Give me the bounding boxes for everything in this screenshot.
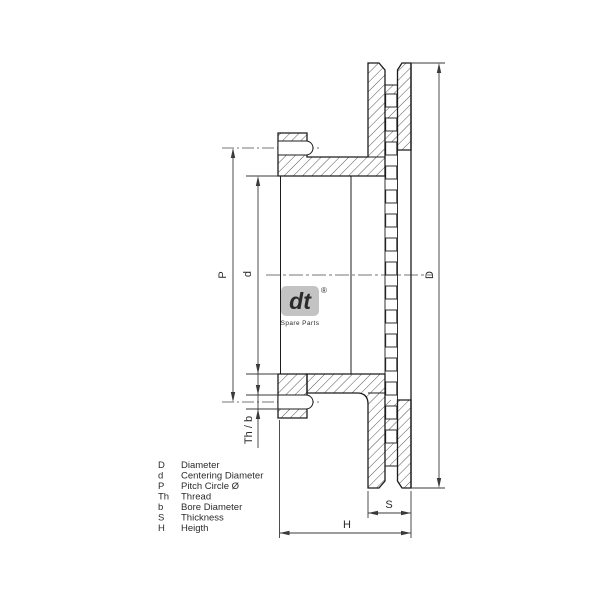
- rotor-outer-plate-top-section: [398, 63, 412, 150]
- dimension-label-H: H: [343, 519, 351, 531]
- legend-name-Th: Thread: [181, 492, 211, 503]
- dimension-label-P: P: [217, 271, 229, 278]
- legend-symbol-H: H: [158, 523, 165, 534]
- vane-rect: [386, 430, 397, 443]
- arrowhead: [437, 63, 441, 73]
- dimension-label-thb: Th / b: [243, 416, 255, 444]
- legend-symbol-b: b: [158, 502, 163, 513]
- vane-rect: [386, 190, 397, 203]
- legend-symbol-Th: Th: [158, 492, 169, 503]
- hat-flange-web-top-section: [278, 63, 385, 176]
- legend: D Diameter d Centering Diameter P Pitch …: [158, 460, 263, 534]
- vane-rect: [386, 334, 397, 347]
- legend-name-P: Pitch Circle Ø: [181, 481, 240, 492]
- vane-rect: [386, 214, 397, 227]
- vane-rect: [386, 142, 397, 155]
- vane-rect: [386, 358, 397, 371]
- rotor-section: [385, 63, 411, 488]
- legend-name-d: Centering Diameter: [181, 471, 263, 482]
- legend-name-D: Diameter: [181, 460, 220, 471]
- arrowhead: [401, 531, 411, 535]
- legend-symbol-S: S: [158, 513, 164, 524]
- arrowhead: [256, 385, 260, 395]
- logo-caption: Spare Parts: [281, 320, 320, 327]
- arrowhead: [280, 531, 290, 535]
- arrowhead: [256, 409, 260, 419]
- technical-drawing-canvas: dt ® Spare Parts: [0, 0, 600, 600]
- rotor-outer-plate-bottom-section: [398, 400, 412, 488]
- legend-symbol-D: D: [158, 460, 165, 471]
- dimension-label-S: S: [385, 499, 392, 511]
- brake-disc-drawing: dt ® Spare Parts: [0, 0, 600, 600]
- vane-rect: [386, 166, 397, 179]
- legend-name-H: Heigth: [181, 523, 208, 534]
- legend-name-b: Bore Diameter: [181, 502, 242, 513]
- vane-rect: [386, 262, 397, 275]
- arrowhead: [401, 511, 411, 515]
- vane-rect: [386, 286, 397, 299]
- dimension-d-thb: [246, 176, 278, 448]
- watermark-logo: dt ® Spare Parts: [281, 286, 327, 327]
- arrowhead: [231, 392, 235, 402]
- logo-registered-mark: ®: [321, 286, 327, 295]
- vane-rect: [386, 406, 397, 419]
- dimension-P: [231, 148, 235, 402]
- vane-rect: [386, 238, 397, 251]
- vent-vanes: [386, 94, 397, 443]
- legend-symbol-P: P: [158, 481, 164, 492]
- arrowhead: [437, 478, 441, 488]
- arrowhead: [231, 148, 235, 158]
- hat-section-top: [278, 63, 385, 176]
- arrowhead: [256, 176, 260, 186]
- dimension-label-d: d: [242, 271, 254, 277]
- arrowhead: [256, 364, 260, 374]
- vane-rect: [386, 94, 397, 107]
- vane-rect: [386, 310, 397, 323]
- vane-rect: [386, 382, 397, 395]
- legend-name-S: Thickness: [181, 513, 224, 524]
- arrowhead: [368, 511, 378, 515]
- hat-web-plate-bottom-section: [307, 374, 385, 488]
- legend-symbol-d: d: [158, 471, 163, 482]
- bolt-hole-top: [278, 141, 313, 155]
- dimension-label-D: D: [424, 271, 436, 279]
- hat-section-bottom: [278, 374, 385, 488]
- bolt-hole-bottom: [278, 395, 313, 409]
- logo-mark: dt: [289, 288, 312, 314]
- vane-rect: [386, 118, 397, 131]
